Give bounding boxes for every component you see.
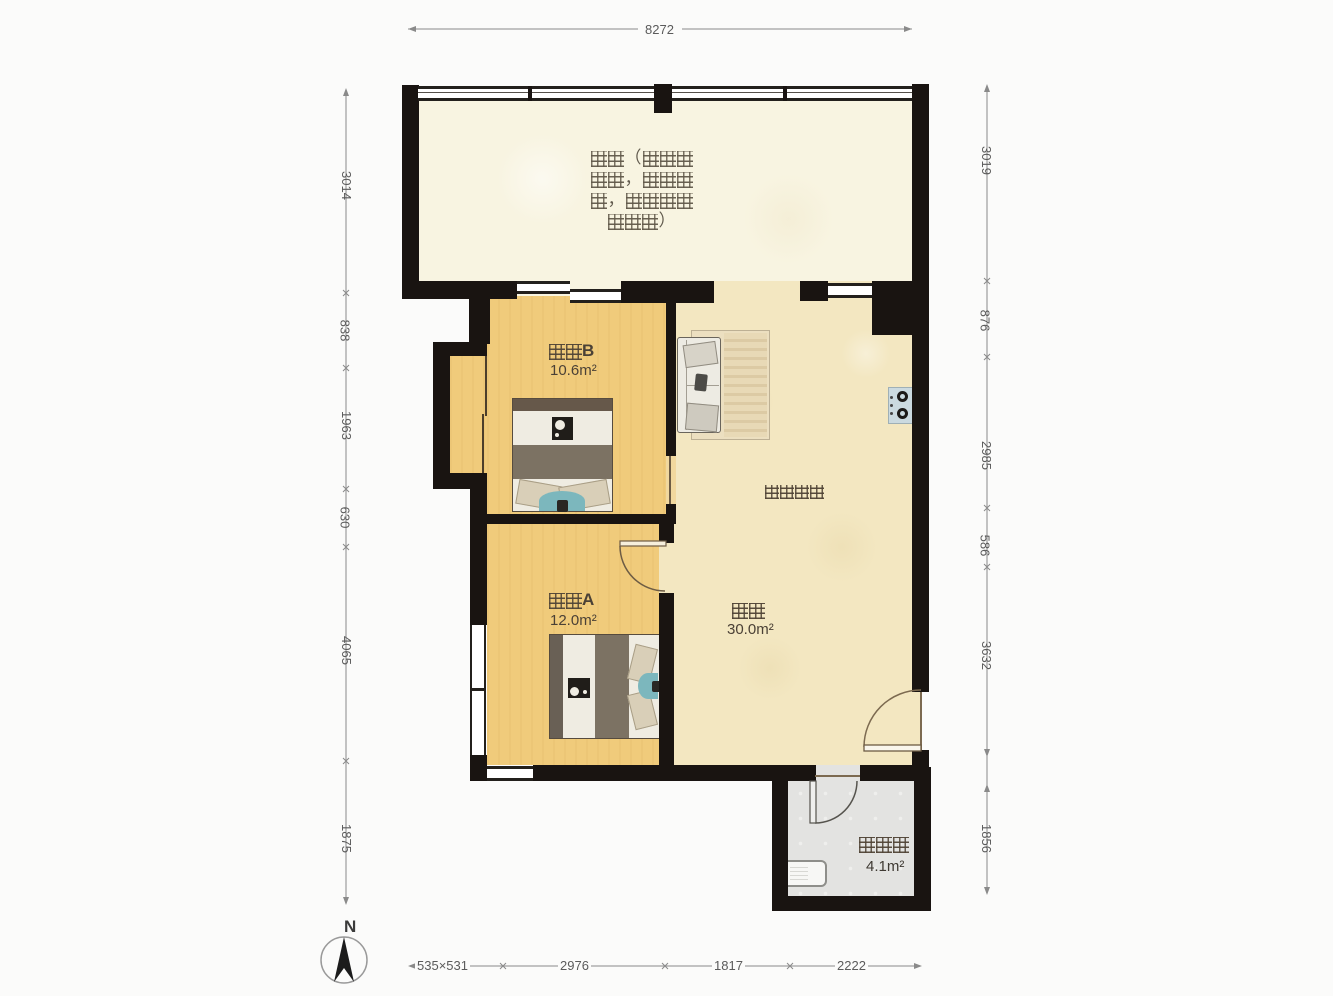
svg-text:N: N [344,917,356,936]
